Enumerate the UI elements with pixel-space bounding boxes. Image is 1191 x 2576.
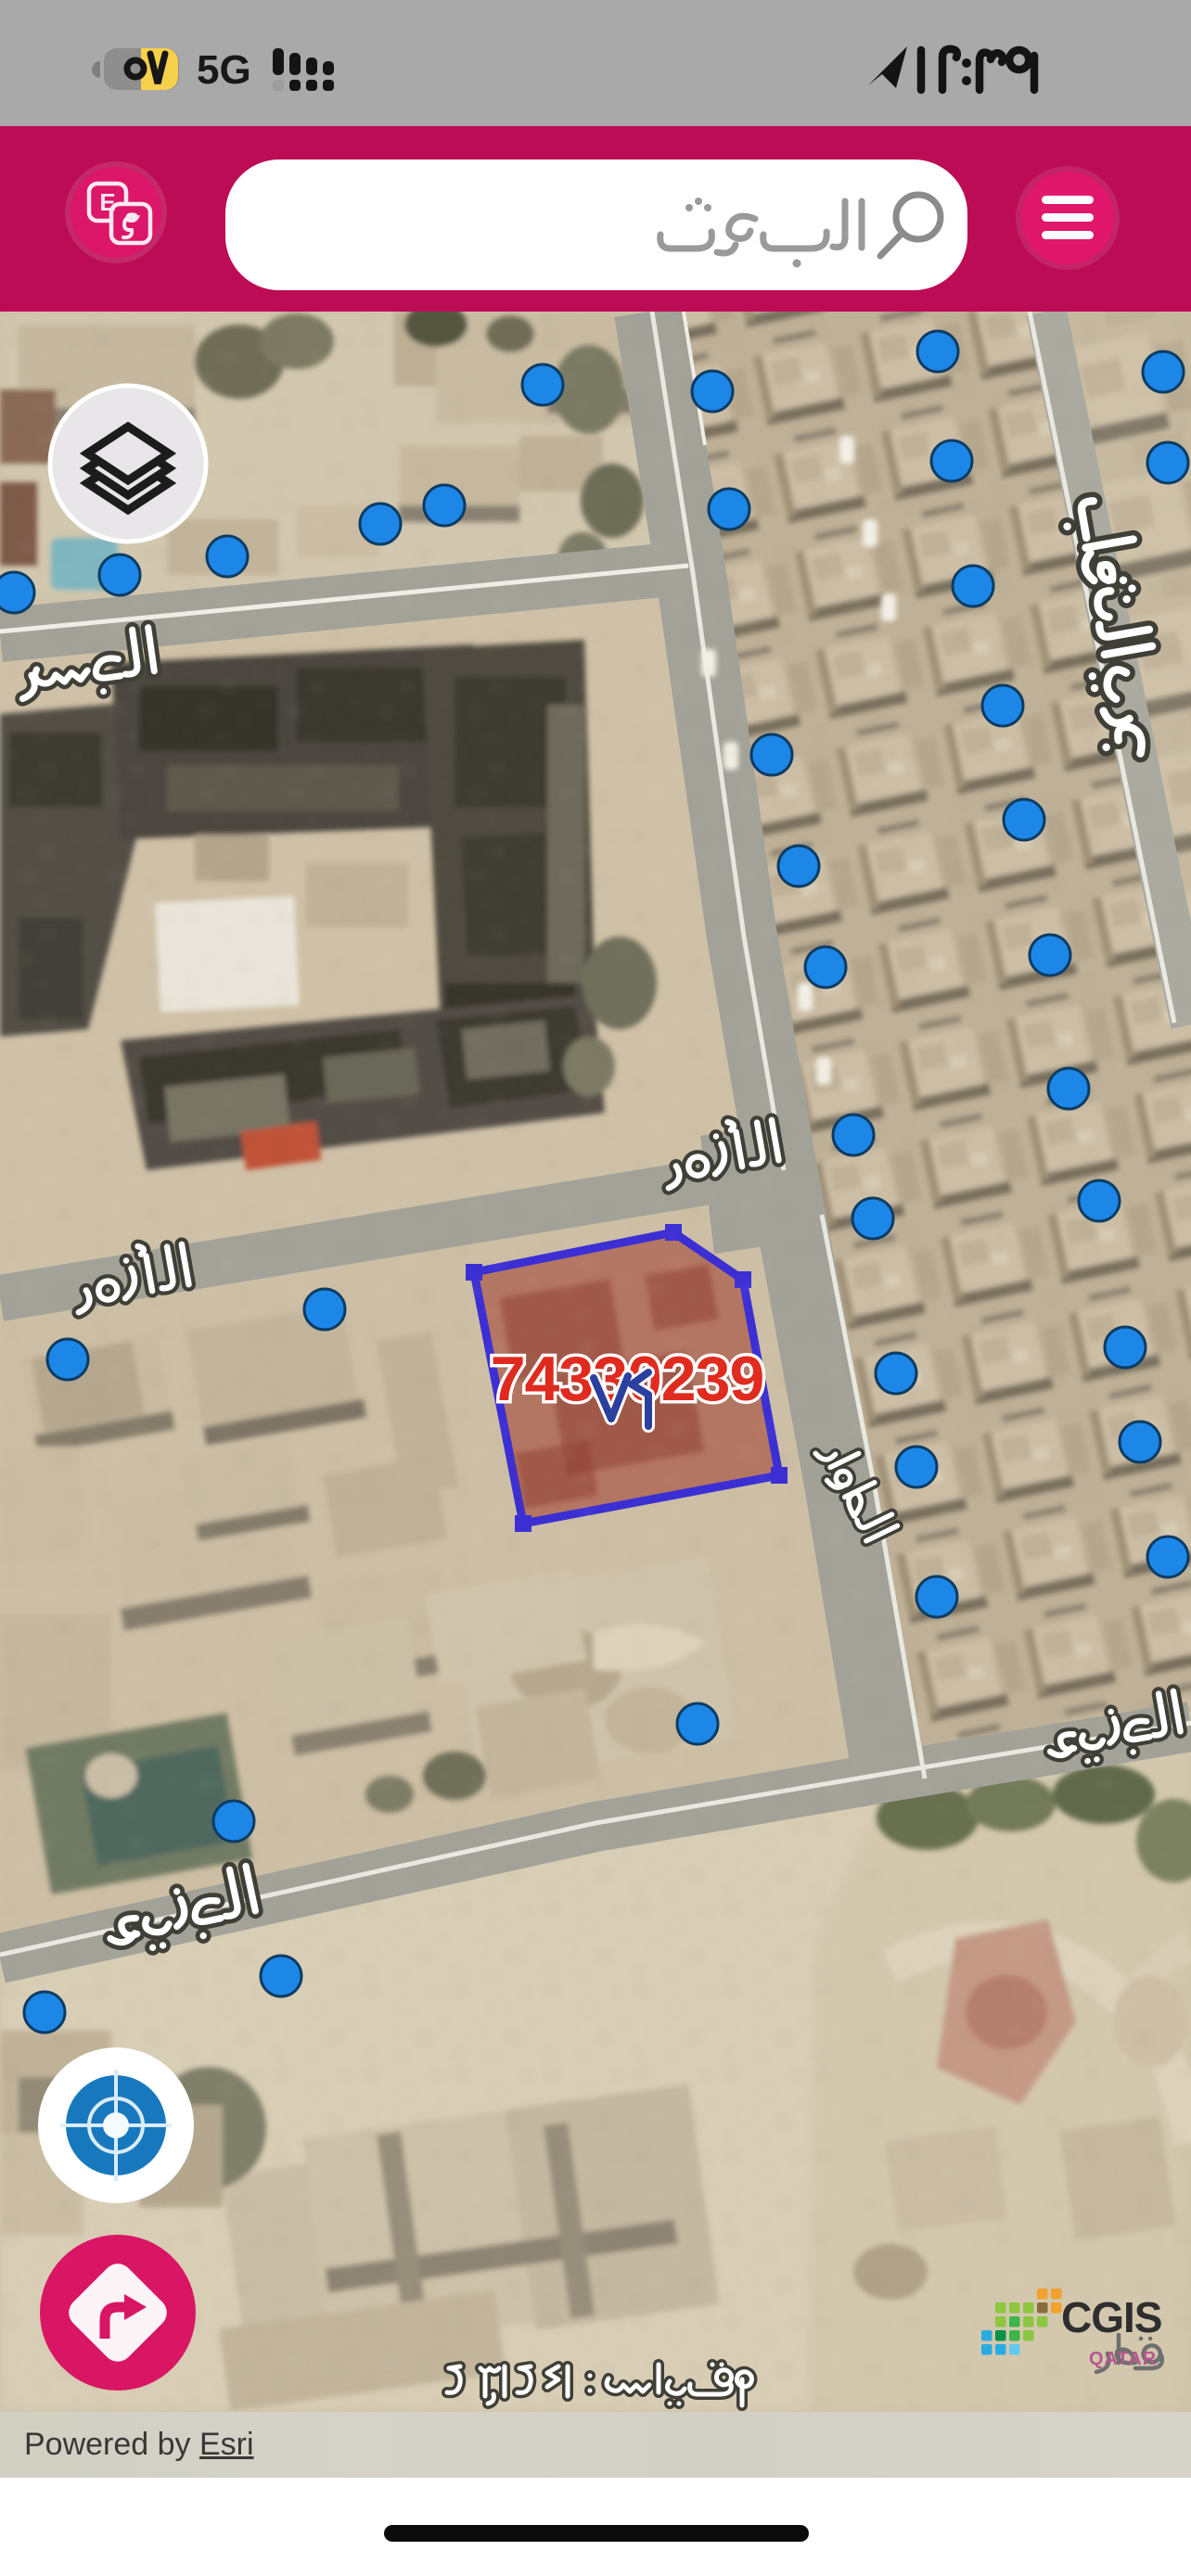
svg-text:E: E (99, 188, 115, 216)
svg-text:5G: 5G (197, 47, 251, 93)
svg-text:CGIS: CGIS (1061, 2293, 1161, 2341)
svg-text:QATAR: QATAR (1089, 2349, 1157, 2369)
